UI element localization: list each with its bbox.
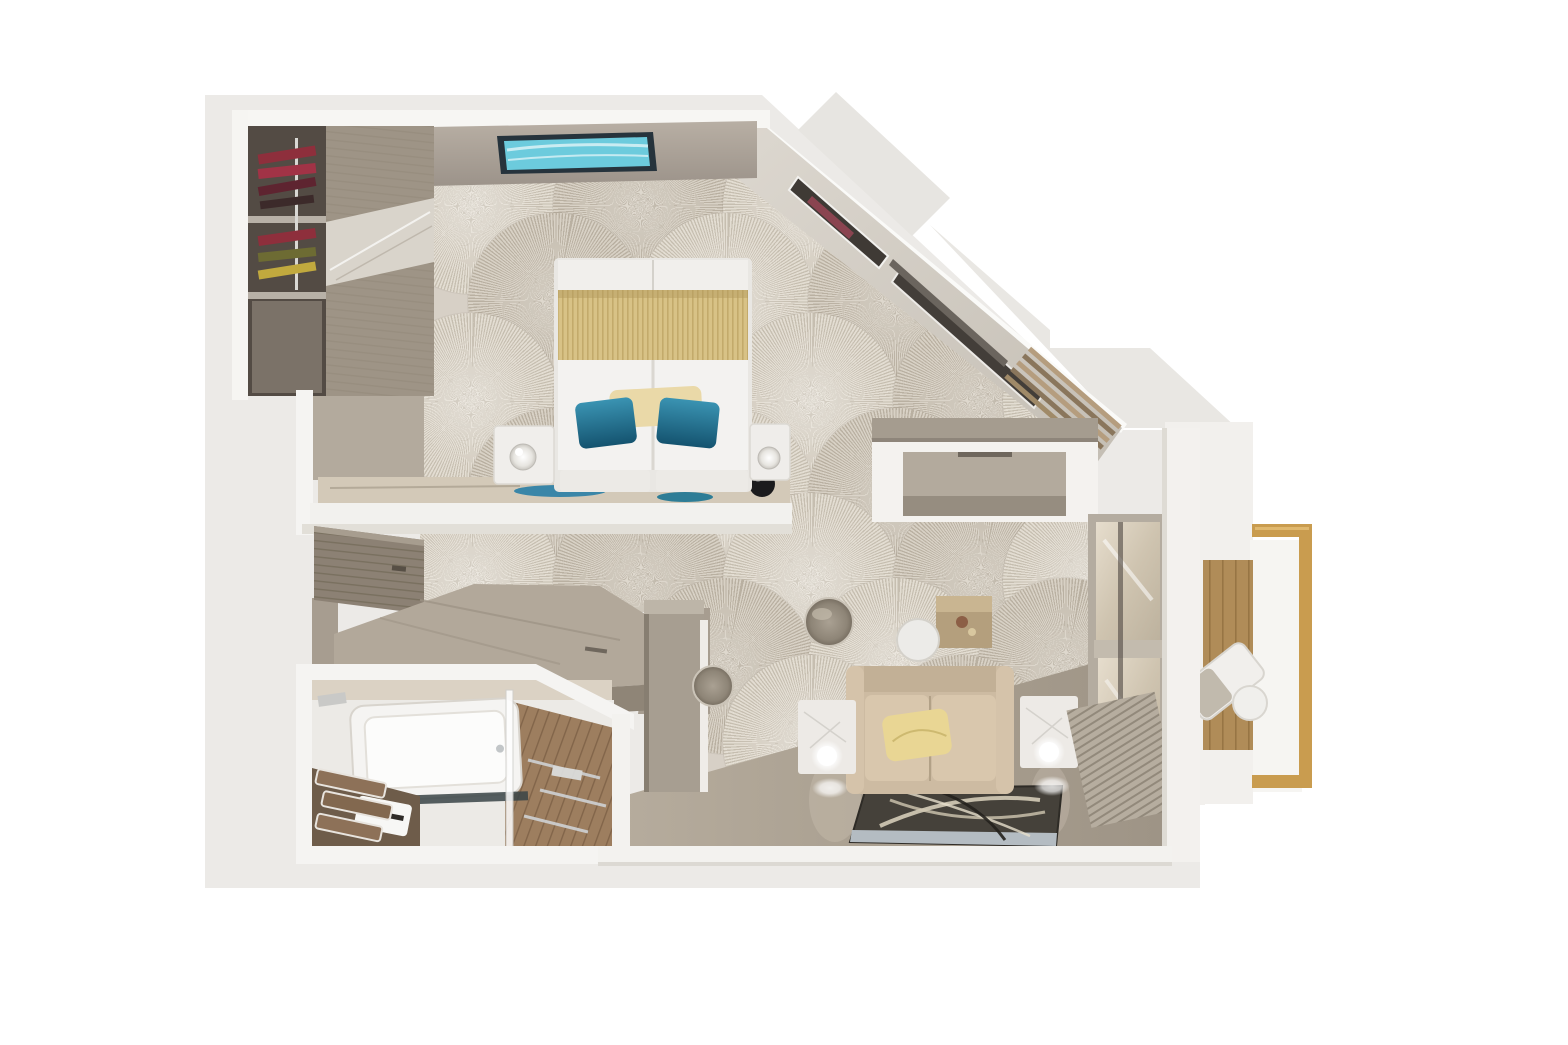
glass-sphere-lamp-right xyxy=(758,447,780,469)
round-stool xyxy=(693,666,733,706)
console-front xyxy=(310,503,792,525)
angled-window-wall xyxy=(729,112,1127,464)
teal-accent-pillow-left xyxy=(574,397,637,450)
balcony-round-table xyxy=(1233,686,1267,720)
teal-accent-pillow-right xyxy=(656,397,720,449)
desk-console-wall xyxy=(872,418,1098,522)
open-wardrobe xyxy=(232,110,434,535)
nightstand-left xyxy=(494,426,554,484)
console-blue-art xyxy=(657,492,713,502)
metal-pouf xyxy=(805,598,853,646)
wood-cube-table xyxy=(936,596,992,648)
scene-layer xyxy=(0,0,1568,1045)
loveseat-sofa xyxy=(846,666,1014,794)
wardrobe-front-panel xyxy=(326,126,434,396)
nightstand-right xyxy=(750,424,790,480)
bathroom xyxy=(296,664,634,864)
wardrobe-lower-front xyxy=(313,396,424,480)
round-white-table xyxy=(897,619,939,661)
sliding-wood-door xyxy=(314,526,424,614)
bottom-wall xyxy=(598,846,1172,864)
floorplan-render xyxy=(0,0,1568,1045)
wardrobe-shelf xyxy=(252,301,322,393)
wall-mounted-tv xyxy=(497,132,657,174)
tv-screen xyxy=(504,137,650,170)
leaf-pattern-rug xyxy=(850,786,1062,846)
gold-bed-runner xyxy=(558,290,748,360)
glass-shower-partition xyxy=(506,690,513,848)
double-bed xyxy=(554,258,752,492)
glass-sphere-lamp-left xyxy=(510,444,536,470)
